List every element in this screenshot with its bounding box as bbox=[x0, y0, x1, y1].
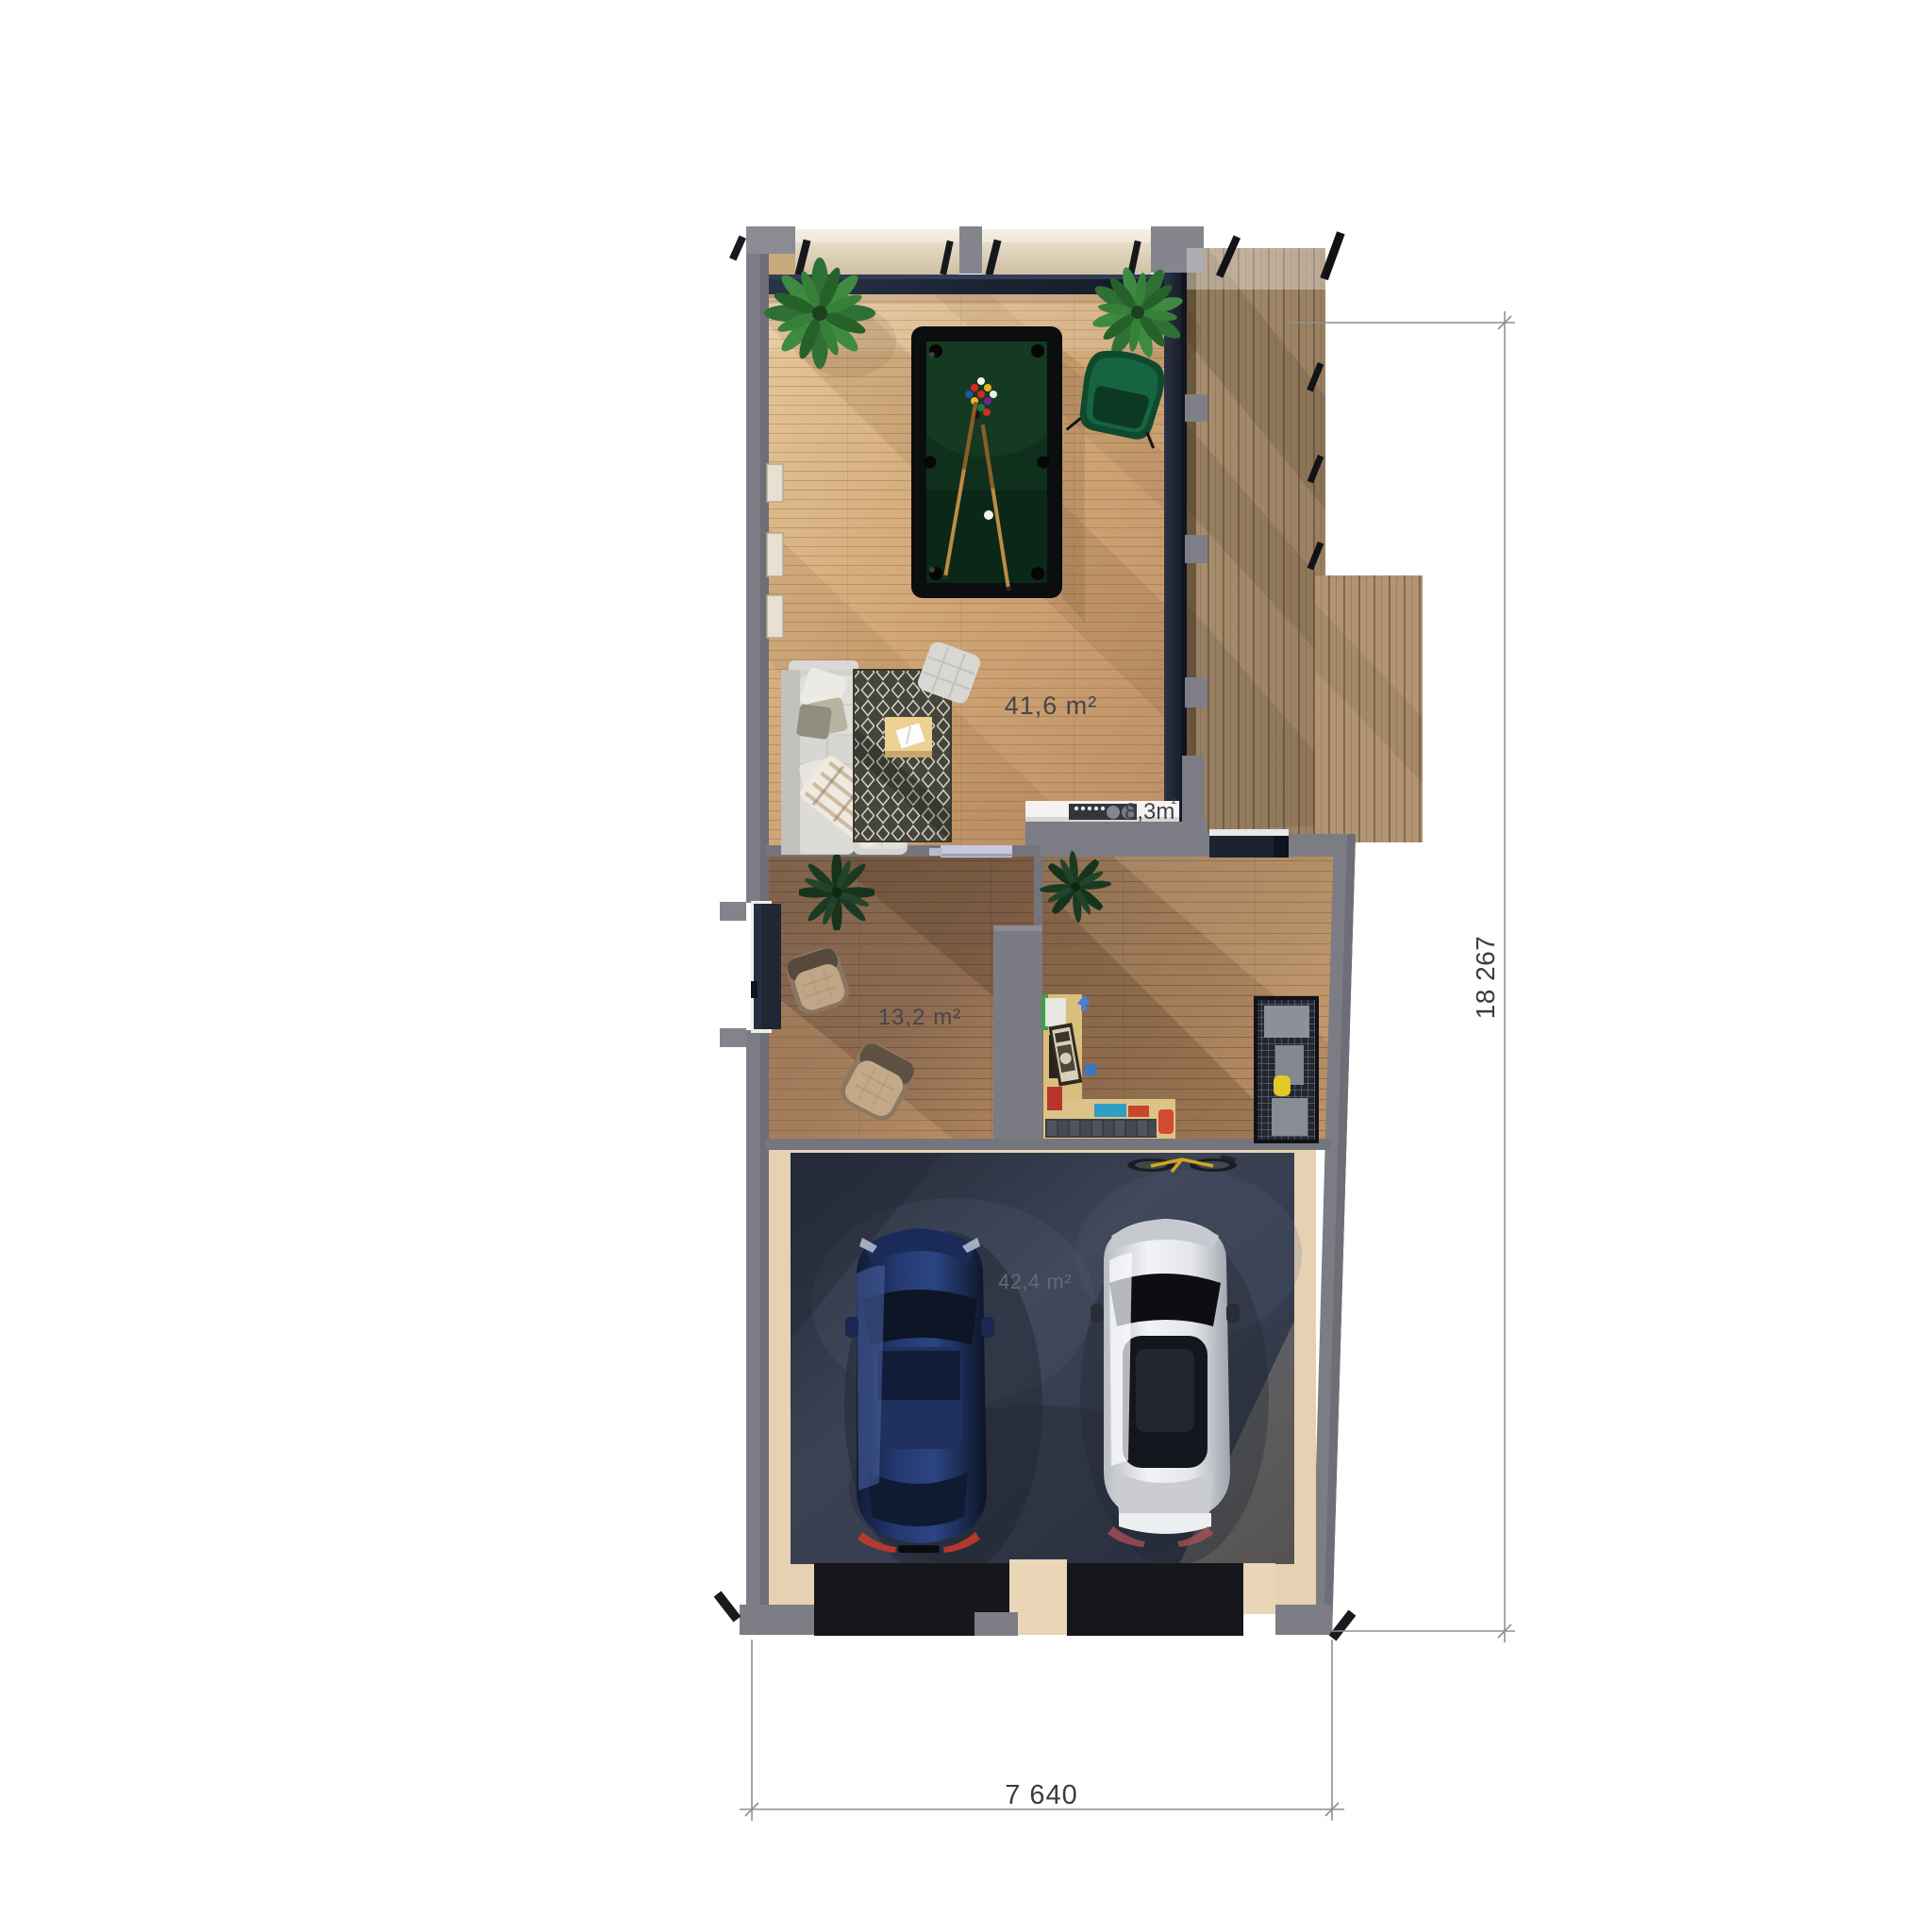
svg-text:42,4 m²: 42,4 m² bbox=[998, 1270, 1072, 1293]
svg-text:13,2 m²: 13,2 m² bbox=[878, 1005, 961, 1030]
svg-text:²: ² bbox=[1172, 795, 1176, 811]
svg-text:41,6 m²: 41,6 m² bbox=[1005, 691, 1098, 720]
svg-text:7 640: 7 640 bbox=[1005, 1780, 1078, 1810]
svg-text:8,3m: 8,3m bbox=[1124, 799, 1174, 824]
svg-text:18 267: 18 267 bbox=[1471, 936, 1500, 1020]
